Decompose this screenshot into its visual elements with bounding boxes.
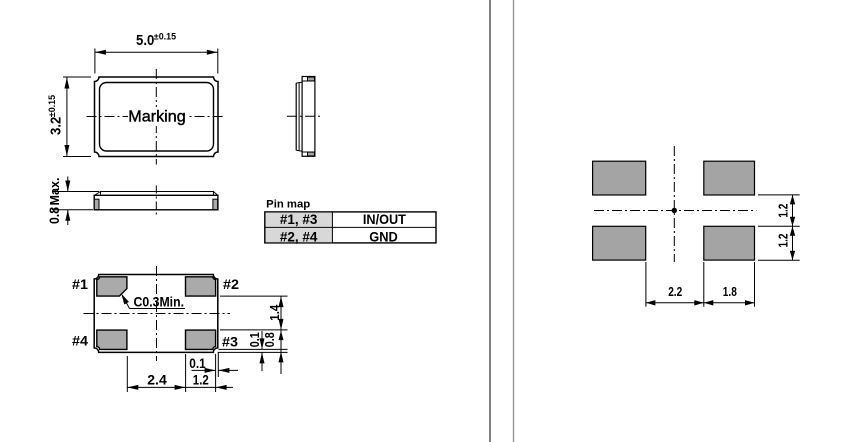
- svg-text:C0.3Min.: C0.3Min.: [134, 295, 185, 310]
- svg-text:±0.15: ±0.15: [47, 94, 58, 117]
- svg-text:0.8: 0.8: [262, 332, 277, 347]
- svg-text:#4: #4: [72, 333, 88, 349]
- svg-text:1.8: 1.8: [723, 285, 737, 299]
- svg-text:Max.: Max.: [48, 178, 62, 206]
- svg-text:2.2: 2.2: [668, 285, 682, 299]
- svg-text:#1: #1: [72, 276, 88, 292]
- svg-text:Pin map: Pin map: [266, 199, 310, 211]
- svg-text:#2: #2: [223, 276, 239, 292]
- svg-text:0.1: 0.1: [189, 356, 206, 371]
- svg-text:0.8: 0.8: [47, 207, 62, 224]
- svg-text:1.2: 1.2: [776, 204, 790, 218]
- svg-text:1.2: 1.2: [193, 373, 209, 388]
- svg-text:Marking: Marking: [128, 109, 186, 126]
- svg-text:GND: GND: [369, 230, 398, 245]
- svg-text:2.4: 2.4: [147, 372, 167, 388]
- svg-text:IN/OUT: IN/OUT: [363, 212, 407, 227]
- svg-text:1.2: 1.2: [776, 233, 790, 247]
- svg-text:#2, #4: #2, #4: [280, 230, 318, 245]
- svg-text:±0.15: ±0.15: [154, 32, 177, 43]
- svg-text:1.4: 1.4: [268, 305, 282, 321]
- svg-text:3.2: 3.2: [48, 117, 65, 135]
- svg-text:#3: #3: [222, 334, 238, 350]
- svg-text:#1, #3: #1, #3: [280, 212, 318, 227]
- svg-text:5.0: 5.0: [136, 32, 154, 49]
- svg-text:0.1: 0.1: [247, 332, 262, 347]
